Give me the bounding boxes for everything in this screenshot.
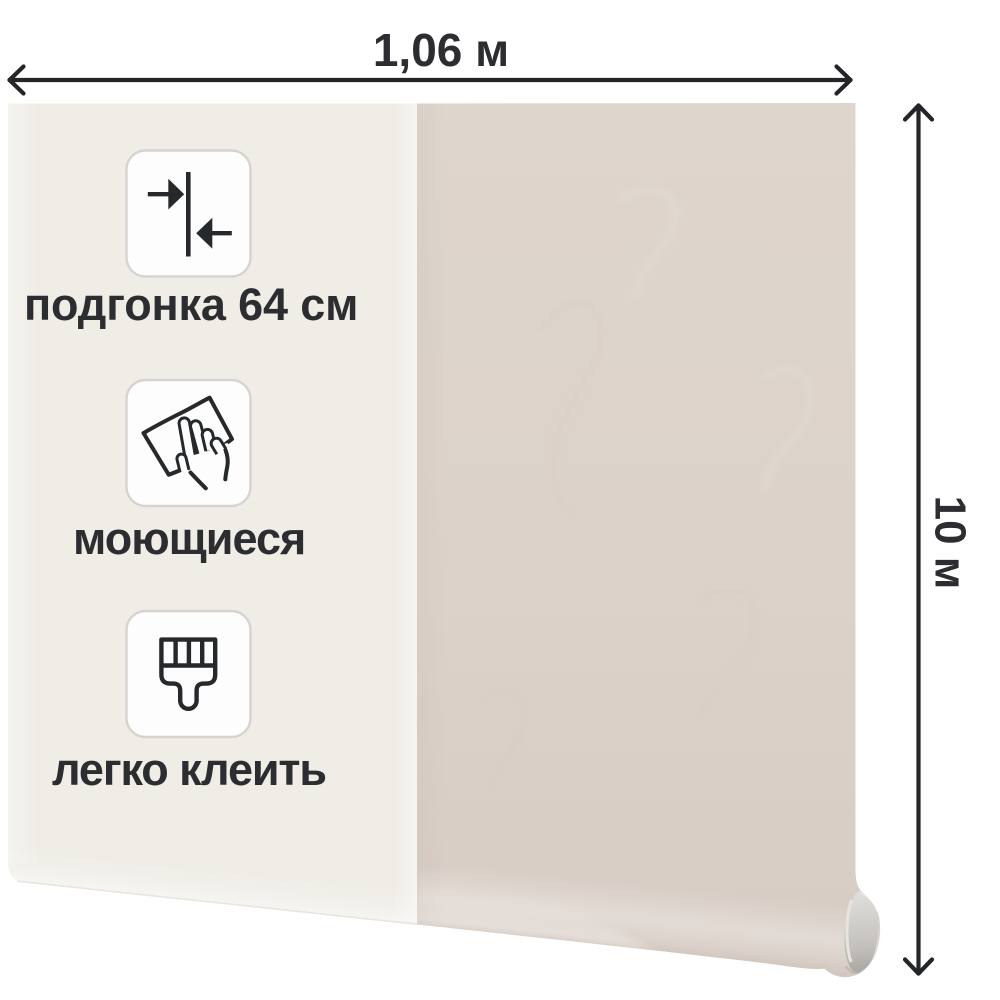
svg-text:10 м: 10 м — [926, 496, 975, 590]
svg-text:моющиеся: моющиеся — [73, 513, 305, 564]
svg-text:легко клеить: легко клеить — [52, 744, 326, 795]
svg-text:подгонка 64 см: подгонка 64 см — [24, 279, 358, 330]
svg-text:1,06 м: 1,06 м — [373, 24, 509, 76]
